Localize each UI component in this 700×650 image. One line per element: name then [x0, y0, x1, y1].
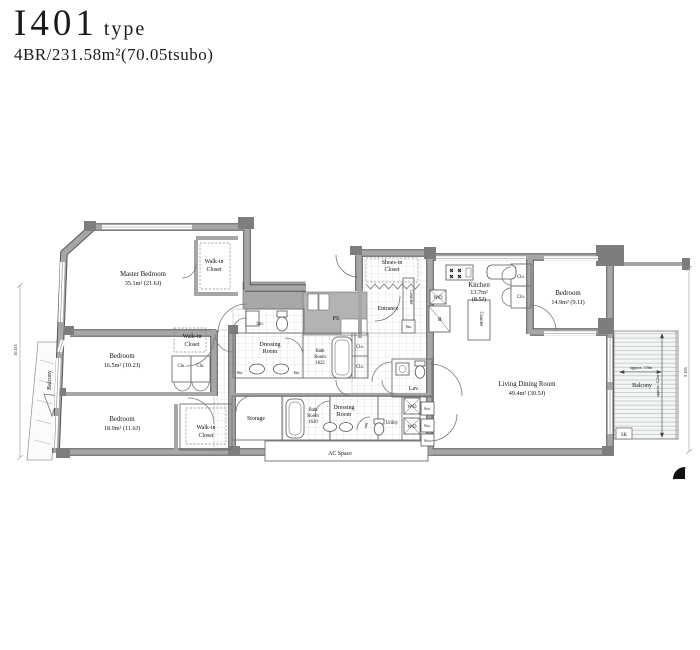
closet-box [191, 356, 210, 382]
label-dressing2-2: Room [337, 412, 352, 418]
label-bath1620-3: 1620 [308, 420, 318, 425]
label-kitchen: Kitchen [468, 282, 490, 289]
label-shoes-closet-2: Closet [384, 267, 399, 273]
toilet-bowl [415, 366, 425, 378]
label-sto: Sto. [237, 370, 244, 375]
label-ac-space: AC Space [328, 451, 352, 457]
label-sto: Sto. [424, 423, 431, 428]
lav-sink-bowl [399, 366, 406, 373]
label-wic1-1: Walk-in [205, 259, 224, 265]
dim-left-edge: 10.435 [13, 344, 18, 356]
sink-basin [250, 364, 265, 374]
sink-basin [274, 364, 289, 374]
kitchen-sink [487, 265, 516, 279]
dim-balcony-height: approx. 4.2m [655, 374, 660, 397]
label-clo: Clo. [356, 345, 364, 350]
label-bath1822-1: Bath [316, 349, 326, 354]
label-sk: SK [621, 433, 628, 438]
label-sto: Sto. [424, 406, 431, 411]
label-living-dining: Living Dining Room [498, 381, 556, 388]
label-refrigerator: R [438, 317, 442, 323]
label-balcony-right: Balcony [632, 383, 652, 389]
label-clo: Clo. [517, 275, 525, 280]
label-entrance: Entrance [378, 306, 399, 312]
label-wic3-1: Walk-in [197, 425, 216, 431]
label-bath1620-1: Bath [309, 408, 319, 413]
label-dressing2-1: Dressing [334, 405, 355, 411]
label-clo: Clo. [178, 364, 186, 369]
label-bath1620-2: Room [307, 414, 319, 419]
label-dressing1-2: Room [263, 349, 278, 355]
label-clo: Clo. [197, 364, 205, 369]
north-arrow [673, 467, 685, 479]
stove-grill [466, 268, 471, 277]
label-clo: Clo. [356, 365, 364, 370]
label-kitchen-area1: 13.7m² [470, 289, 488, 296]
toilet-tank [415, 361, 425, 366]
label-counter-kitchen: Counter [478, 311, 483, 327]
bathtub-1822-inner [335, 340, 349, 375]
label-master-bedroom: Master Bedroom [120, 271, 167, 278]
label-bedroom-2-area: 16.5m² (10.2J) [104, 362, 140, 369]
label-master-bedroom-area: 35.1m² (21.6J) [125, 280, 161, 287]
label-clo: Clo. [517, 295, 525, 300]
label-wic2-2: Closet [184, 342, 199, 348]
dim-right-edge: 9.185 [683, 367, 688, 376]
right-dim-line [686, 266, 692, 454]
sink-basin [324, 423, 337, 432]
label-wic2-1: Walk-in [183, 334, 202, 340]
label-wd: W/D [407, 405, 417, 410]
label-bath1822-2: Room [314, 355, 326, 360]
toilet-bowl [277, 317, 288, 331]
label-kitchen-area2: (8.5J) [472, 296, 486, 303]
dim-balcony-width: approx. 3.9m [630, 365, 653, 370]
label-wd: W/D [407, 425, 417, 430]
closet-box [172, 356, 191, 382]
toilet-tank [277, 311, 287, 317]
label-bedroom-4-area: 14.9m² (9.1J) [551, 299, 584, 306]
label-living-dining-area: 49.4m² (30.5J) [509, 390, 545, 397]
label-lav: Lav. [409, 386, 420, 392]
label-counter-entrance: Counter [408, 289, 413, 305]
label-bedroom-2: Bedroom [109, 353, 135, 360]
label-utility: Utility [386, 421, 399, 426]
floor-plan-page: I401 type 4BR/231.58m²(70.05tsubo) [0, 0, 700, 650]
label-sto: Sto. [406, 324, 413, 329]
label-bath1822-3: 1822 [315, 361, 325, 366]
label-sto: Sto. [256, 322, 263, 327]
bathtub-1620-inner [289, 402, 301, 435]
label-bedroom-4: Bedroom [555, 290, 581, 297]
label-balcony-left: Balcony [47, 370, 53, 390]
sink-basin [340, 423, 353, 432]
label-bedroom-3-area: 18.9m² (11.6J) [104, 425, 140, 432]
label-sto: Sto. [364, 423, 369, 430]
label-sto: Sto. [294, 370, 301, 375]
meter-box [319, 294, 329, 310]
meter-box [308, 294, 318, 310]
toilet-bowl [374, 423, 384, 435]
label-storage: Storage [247, 416, 265, 422]
floor-plan: Master Bedroom 35.1m² (21.6J) Bedroom 16… [0, 0, 700, 650]
left-dim-line [17, 283, 23, 460]
label-shoes-closet-1: Shoes-in [382, 260, 403, 266]
label-wd: W/D [433, 296, 443, 301]
label-wic1-2: Closet [206, 267, 221, 273]
label-dressing1-1: Dressing [260, 342, 281, 348]
label-bedroom-3: Bedroom [109, 416, 135, 423]
label-wic3-2: Closet [198, 433, 213, 439]
label-ps: PS [333, 316, 340, 322]
label-sto: Sto. [424, 438, 431, 443]
